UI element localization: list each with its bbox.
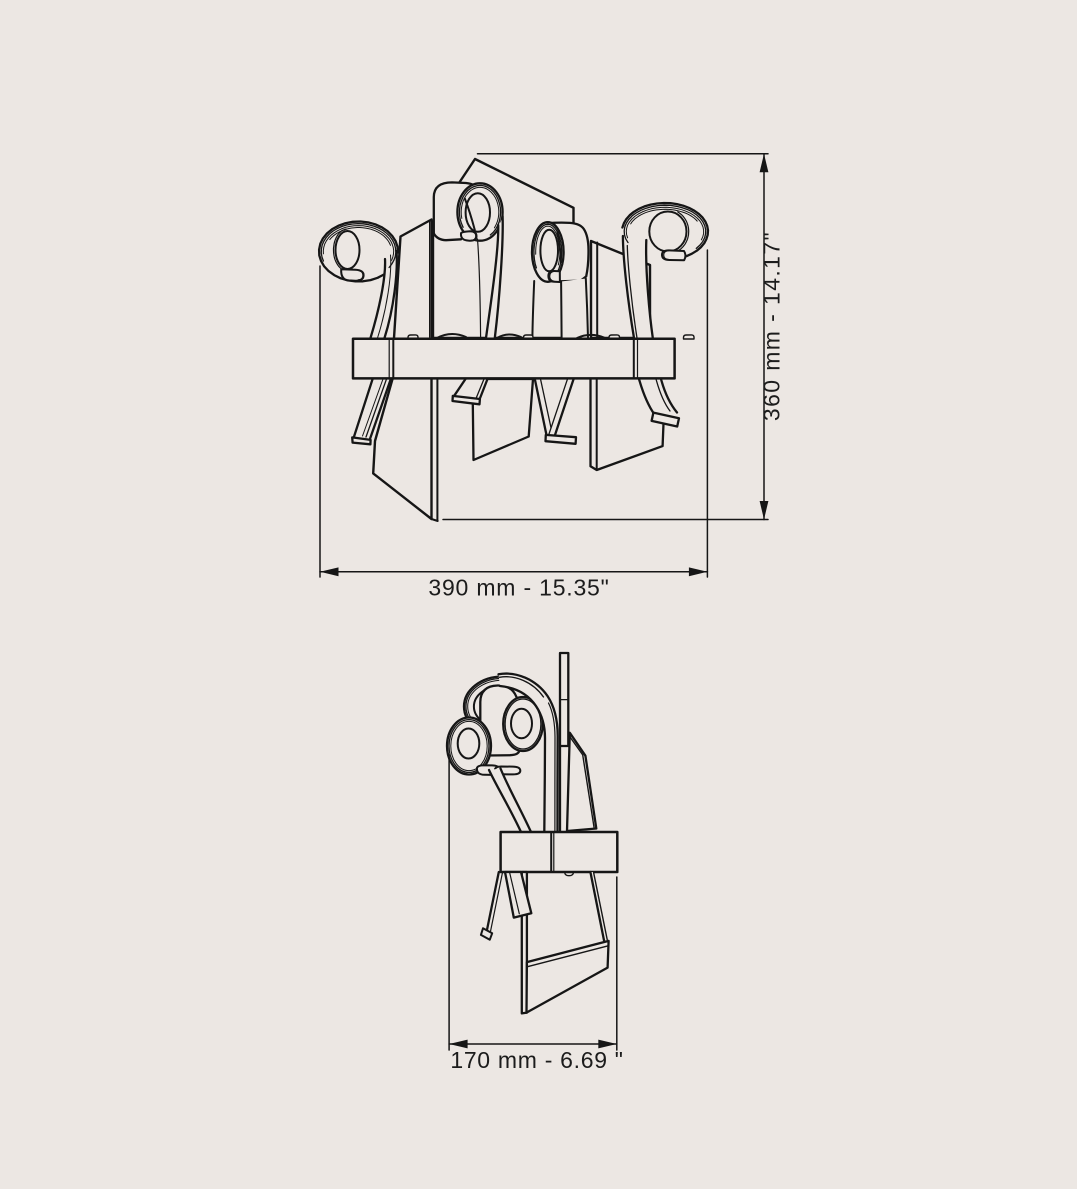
svg-text:360 mm - 14.17": 360 mm - 14.17" xyxy=(759,231,785,421)
svg-text:390 mm - 15.35": 390 mm - 15.35" xyxy=(428,575,609,601)
svg-text:170 mm - 6.69 ": 170 mm - 6.69 " xyxy=(450,1047,623,1073)
